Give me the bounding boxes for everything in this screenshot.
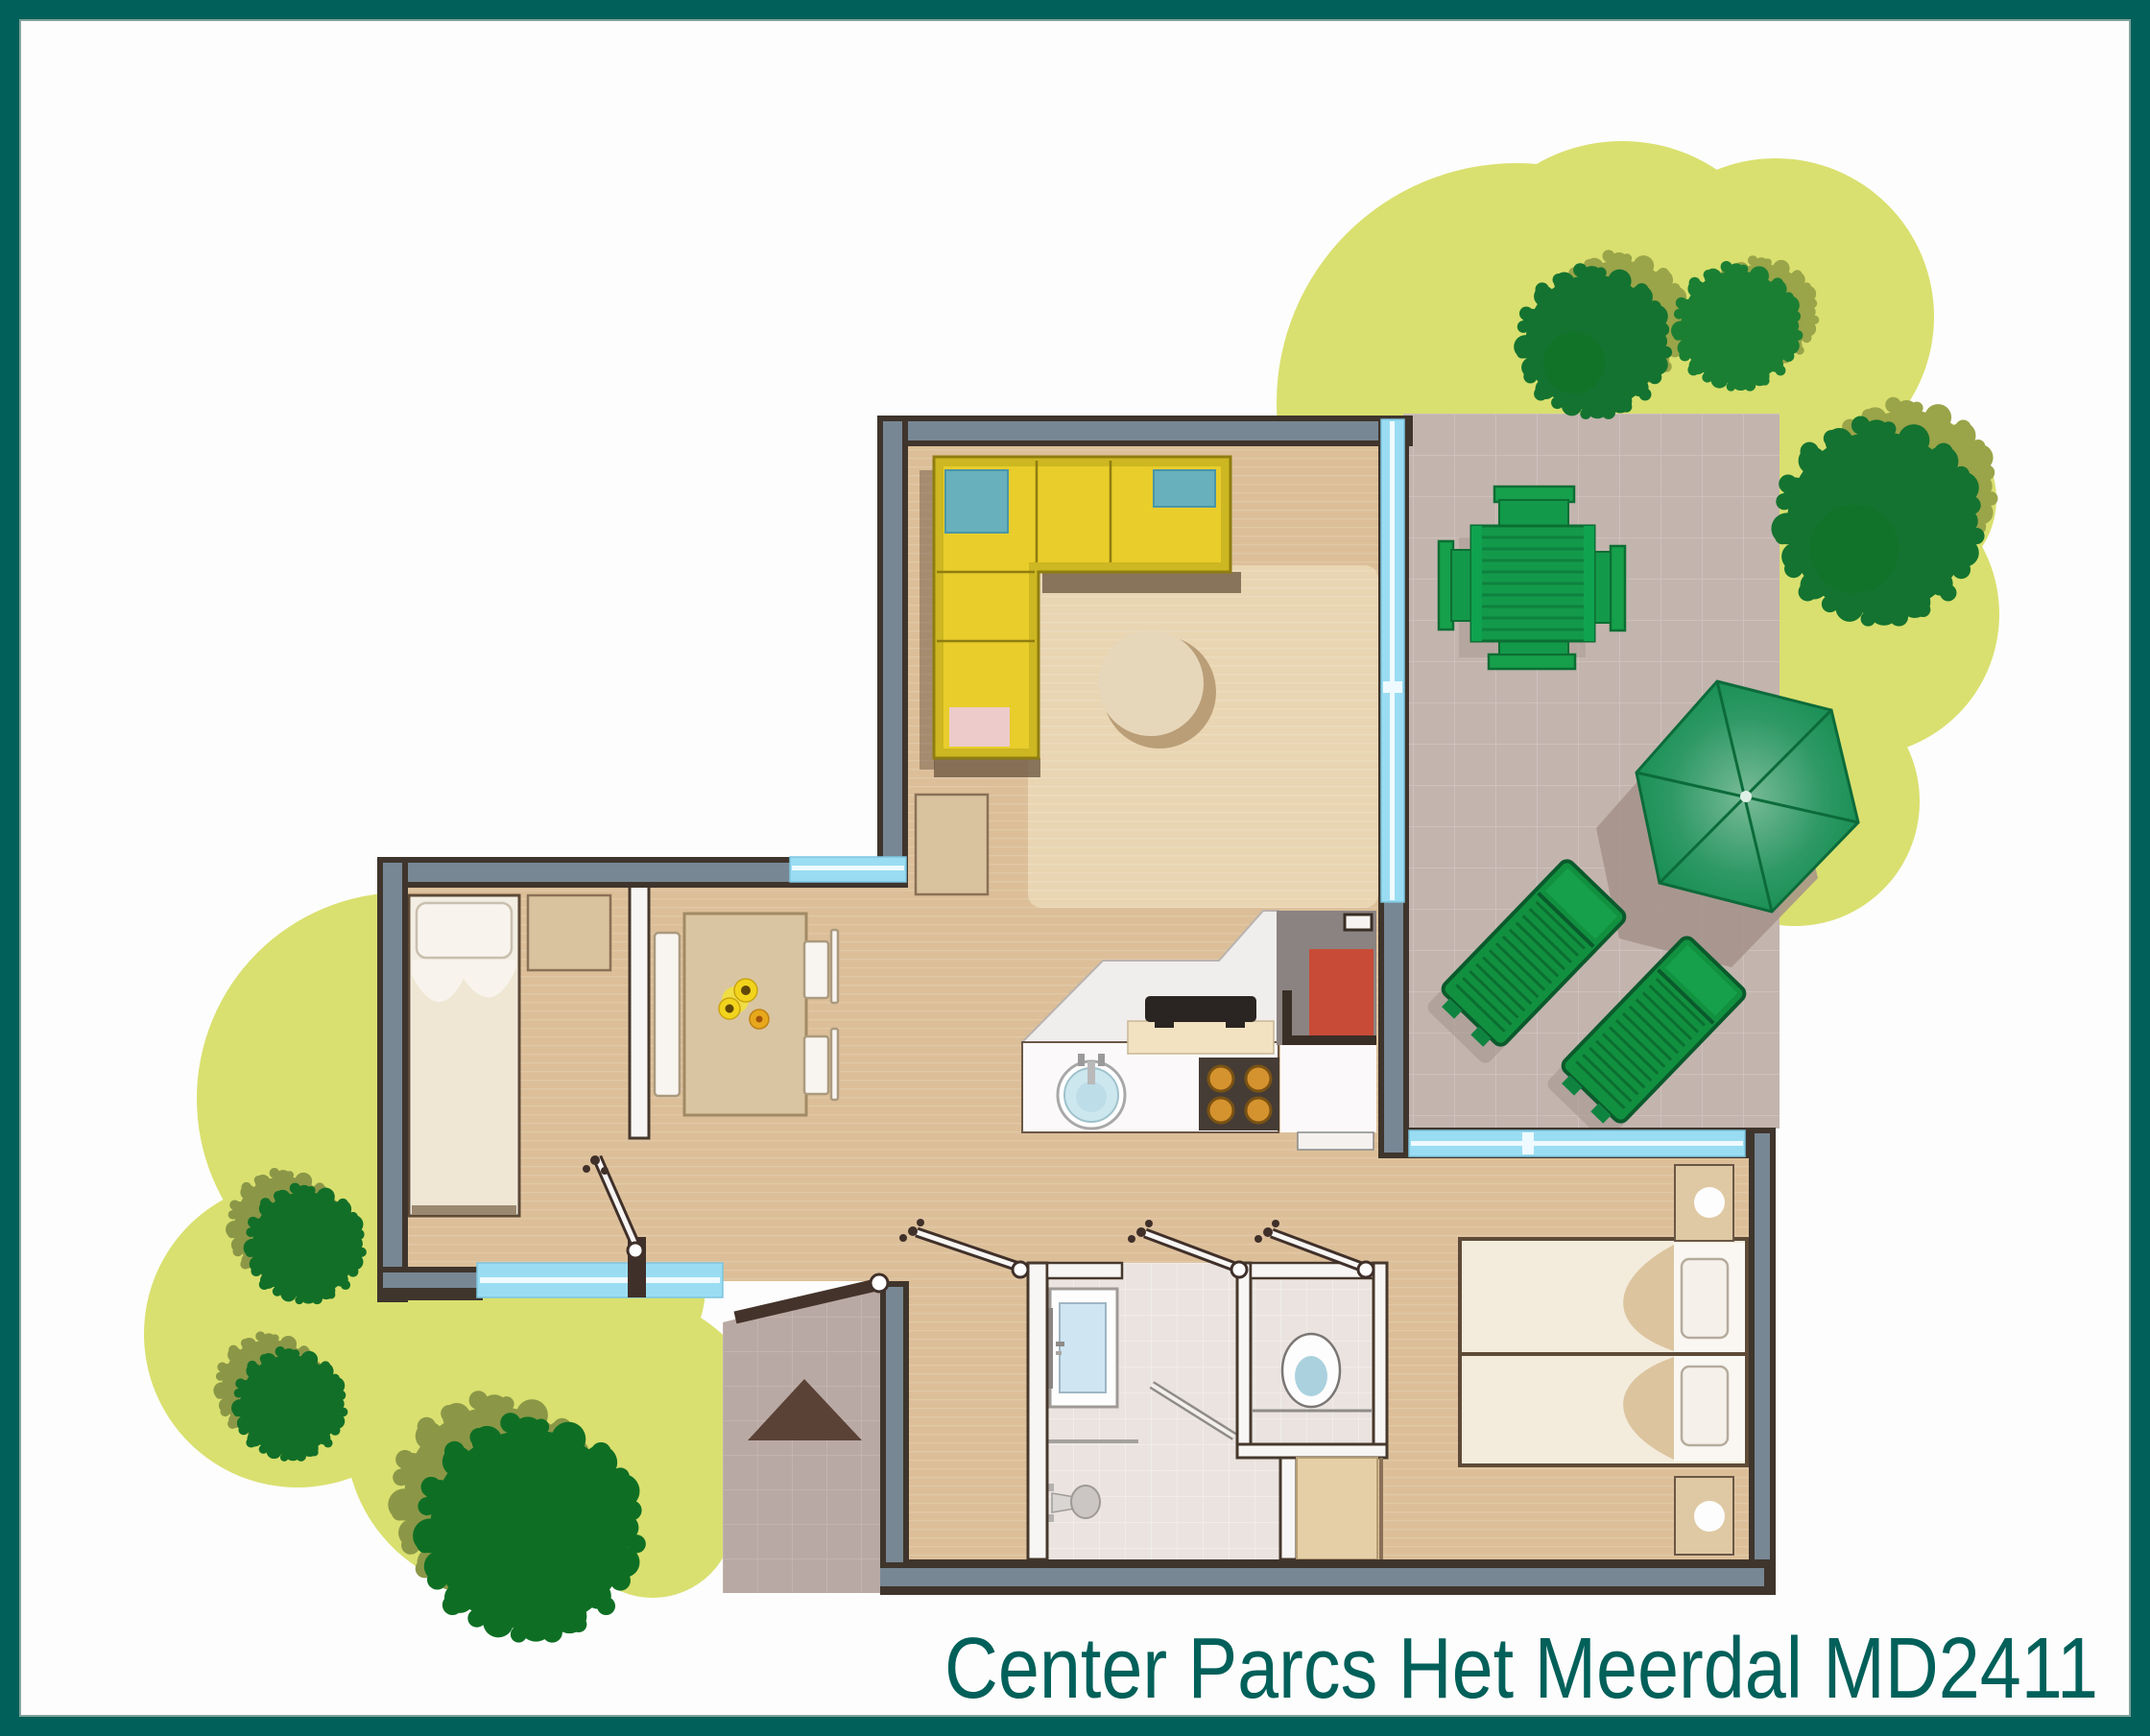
svg-text:Center Parcs Het Meerdal MD241: Center Parcs Het Meerdal MD2411 [944,1621,2098,1717]
